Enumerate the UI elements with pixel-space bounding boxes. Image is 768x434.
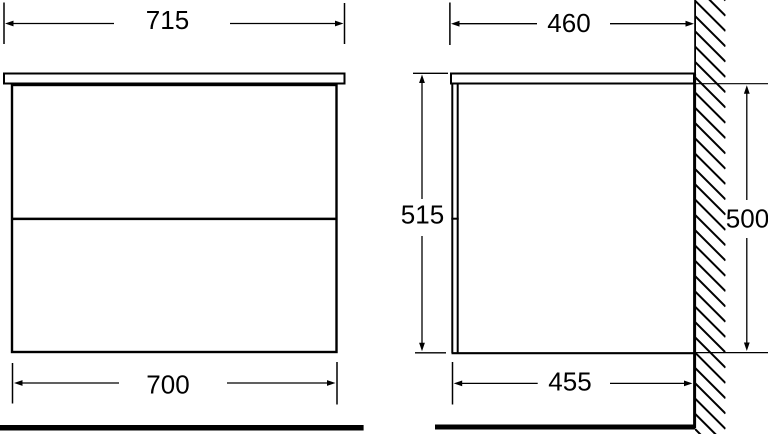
svg-text:455: 455 <box>548 366 591 396</box>
svg-text:460: 460 <box>547 8 590 38</box>
svg-text:500: 500 <box>726 203 768 233</box>
svg-text:515: 515 <box>401 200 444 230</box>
svg-text:700: 700 <box>146 369 189 399</box>
svg-text:715: 715 <box>146 5 189 35</box>
